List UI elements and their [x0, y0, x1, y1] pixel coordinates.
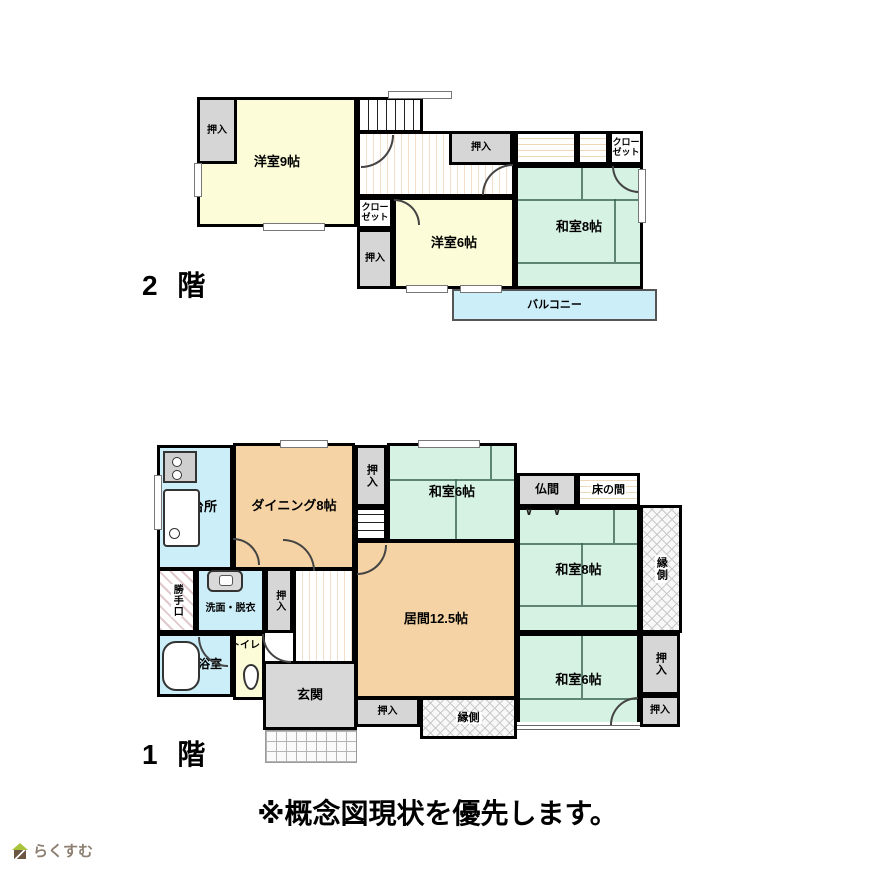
f2-closet-shelves-1: [515, 131, 577, 165]
room-f1-oshiire-hall: 押入: [265, 568, 293, 633]
room-f1-senmen-label: 洗面・脱衣: [206, 603, 256, 615]
tatami-line: [581, 636, 583, 698]
bathtub-icon: [162, 641, 200, 691]
f2-balcony-label: バルコニー: [527, 299, 582, 312]
room-f1-kattegu-label: 勝手口: [171, 584, 183, 617]
room-f1-genkan: 玄関: [263, 661, 357, 730]
f1-engawa-south: 縁側: [420, 697, 517, 739]
stove-icon: [163, 451, 197, 483]
room-f2-washitsu8-label: 和室8帖: [556, 220, 602, 235]
tatami-line: [490, 446, 492, 479]
room-f2-closet-ne: クローゼット: [609, 131, 643, 165]
f2-yoshitsu9-window-w: [194, 163, 202, 197]
kitchen-sink-icon: [163, 489, 200, 547]
f2-staircase: [357, 97, 423, 133]
room-f2-closet-ne-label: クローゼット: [612, 138, 640, 158]
f1-engawa-east: 縁側: [640, 505, 682, 633]
room-f2-closet-mid: クローゼット: [357, 197, 393, 229]
tatami-line: [518, 262, 640, 264]
room-f1-washitsu6-n: 和室6帖: [387, 443, 517, 542]
toilet-icon: [243, 664, 259, 690]
room-f1-oshiire-hall-label: 押入: [273, 590, 285, 612]
f1-staircase: [355, 507, 387, 541]
room-f2-closet-mid-label: クローゼット: [360, 203, 390, 223]
tatami-line: [520, 543, 637, 545]
tatami-line: [518, 199, 640, 201]
room-f2-oshiire-hall-label: 押入: [471, 142, 491, 154]
butsuma-door-marks: ∨ ∨: [518, 505, 576, 519]
f1-engawa-east-label: 縁側: [655, 555, 668, 583]
tatami-line: [520, 698, 637, 700]
room-f1-oshiire-s-label: 押入: [378, 706, 398, 718]
floorplan-canvas: 洋室9帖 押入 押入 クローゼット 和室8帖 クローゼット 押入: [0, 0, 875, 871]
room-f2-oshiire-mid-label: 押入: [365, 253, 385, 265]
room-f2-oshiire-mid: 押入: [357, 229, 393, 289]
f2-yoshitsu9-window-s: [263, 223, 325, 231]
room-f1-butsuma-label: 仏間: [535, 483, 559, 497]
room-f1-washitsu6-s-label: 和室6帖: [555, 673, 601, 688]
f1-kitchen-window: [154, 475, 162, 530]
tatami-line: [581, 168, 583, 199]
disclaimer-note: ※概念図現状を優先します。: [257, 792, 617, 832]
room-f1-oshiire-se-label: 押入: [650, 705, 670, 717]
f2-yoshitsu6-window-2: [460, 285, 502, 293]
room-f1-toilet-label: トイレ: [230, 640, 260, 652]
f2-balcony: バルコニー: [452, 289, 657, 321]
room-f1-oshiire-e-label: 押入: [654, 652, 667, 676]
room-f1-kattegu: 勝手口: [157, 568, 196, 633]
tatami-line: [613, 510, 615, 543]
room-f1-living-label: 居間12.5帖: [404, 612, 468, 627]
washbasin-icon: [207, 570, 243, 592]
room-f1-toilet: トイレ: [233, 633, 265, 700]
room-f1-washitsu8-label: 和室8帖: [555, 563, 601, 578]
house-icon: [12, 843, 28, 859]
room-f1-oshiire-se: 押入: [640, 695, 680, 727]
room-f2-yoshitsu6-label: 洋室6帖: [431, 236, 477, 251]
room-f1-oshiire-dining-label: 押入: [365, 464, 378, 488]
room-f1-washitsu6-n-label: 和室6帖: [429, 485, 475, 500]
room-f2-yoshitsu9-label: 洋室9帖: [254, 155, 300, 170]
room-f1-dining-label: ダイニング8帖: [251, 499, 336, 514]
room-f1-oshiire-dining: 押入: [355, 445, 387, 507]
f1-entrance-porch: [265, 730, 357, 763]
f1-engawa-south-label: 縁側: [456, 712, 482, 725]
room-f1-genkan-label: 玄関: [297, 688, 323, 703]
f1-door-arc-washroom: [262, 634, 291, 663]
site-logo-text: らくすむ: [33, 840, 93, 861]
room-f1-oshiire-s: 押入: [355, 697, 420, 727]
f2-closet-shelves-2: [577, 131, 609, 165]
tatami-line: [390, 479, 514, 481]
f1-washitsu6-window: [418, 440, 480, 448]
floor2-label: 2 階: [142, 264, 211, 304]
room-f1-butsuma: 仏間: [517, 473, 577, 507]
room-f2-oshiire-nw-label: 押入: [207, 125, 227, 137]
floor1-label: 1 階: [142, 733, 211, 773]
room-f2-oshiire-nw: 押入: [197, 97, 237, 164]
f2-yoshitsu6-window-1: [406, 285, 448, 293]
tatami-line: [614, 199, 616, 262]
site-logo: らくすむ: [12, 840, 93, 861]
room-f1-tokonoma-label: 床の間: [591, 484, 626, 497]
room-f1-oshiire-e: 押入: [640, 633, 680, 695]
f2-stair-window: [388, 91, 452, 99]
f2-washitsu8-window: [638, 169, 646, 223]
room-f1-washitsu8: 和室8帖: [517, 507, 640, 633]
room-f1-tokonoma: 床の間: [577, 473, 640, 507]
f1-hallway: [293, 568, 355, 665]
f1-dining-window: [280, 440, 328, 448]
room-f2-oshiire-hall: 押入: [449, 131, 513, 165]
tatami-line: [520, 605, 637, 607]
